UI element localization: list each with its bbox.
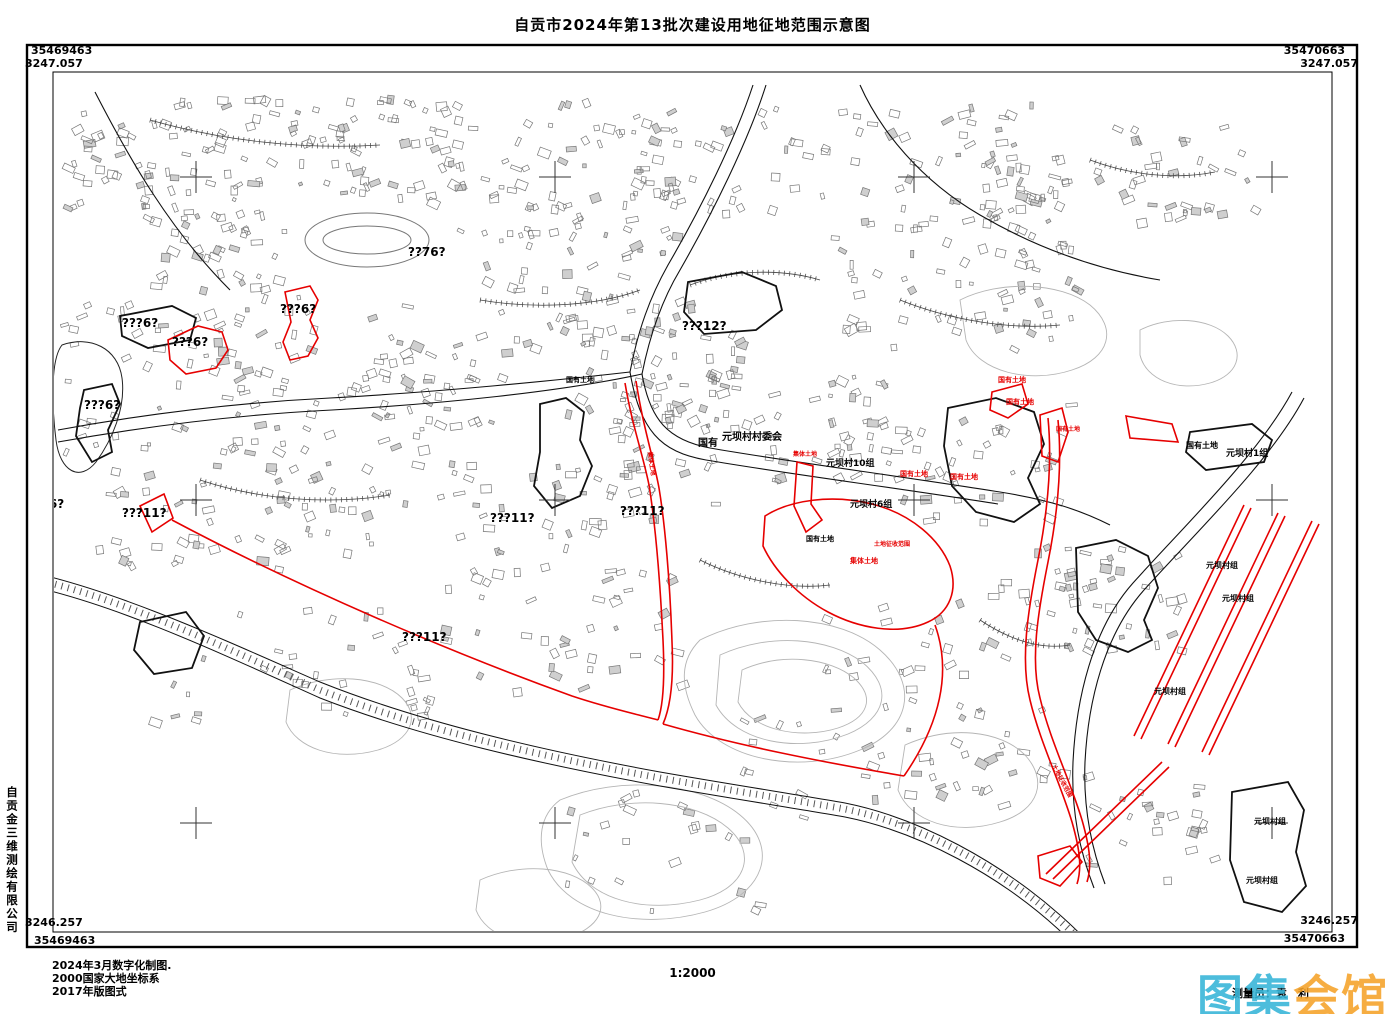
building-footprint — [676, 680, 689, 691]
building-footprint — [482, 276, 494, 288]
building-footprint — [483, 525, 495, 533]
building-footprint — [951, 738, 963, 749]
building-footprint — [107, 170, 118, 179]
building-footprint — [852, 375, 856, 379]
building-footprint — [214, 338, 223, 347]
building-footprint — [143, 488, 150, 496]
building-footprint — [388, 181, 399, 189]
building-footprint — [414, 181, 426, 191]
building-footprint — [541, 563, 551, 572]
building-footprint — [1069, 315, 1074, 321]
building-footprint — [273, 447, 286, 458]
building-footprint — [423, 108, 429, 114]
building-footprint — [204, 354, 209, 358]
building-footprint — [252, 439, 259, 445]
coord-bottom-left-x: 35469463 — [34, 934, 95, 947]
building-footprint — [569, 232, 576, 241]
building-footprint — [426, 416, 433, 424]
building-footprint — [236, 210, 245, 219]
building-footprint — [350, 115, 357, 122]
building-footprint — [978, 244, 988, 255]
building-footprint — [602, 576, 614, 584]
building-footprint — [217, 97, 228, 105]
building-footprint — [1086, 863, 1098, 867]
building-footprint — [973, 787, 979, 791]
building-footprint — [641, 176, 646, 183]
building-footprint — [995, 248, 1006, 258]
building-footprint — [829, 420, 834, 428]
building-footprint — [1251, 205, 1261, 215]
building-footprint — [773, 106, 779, 112]
building-footprint — [340, 191, 347, 195]
building-footprint — [235, 361, 241, 369]
building-footprint — [411, 140, 420, 149]
building-footprint — [115, 151, 126, 158]
building-footprint — [549, 228, 559, 236]
building-footprint — [582, 291, 591, 301]
building-footprint — [680, 384, 688, 387]
building-footprint — [1131, 126, 1139, 134]
building-footprint — [541, 637, 549, 646]
building-footprint — [125, 301, 134, 310]
building-footprint — [187, 359, 193, 368]
building-footprint — [1035, 467, 1040, 472]
building-footprint — [986, 637, 999, 648]
building-footprint — [144, 471, 155, 481]
building-footprint — [853, 114, 860, 120]
building-footprint — [445, 585, 451, 594]
grid-cross — [898, 484, 930, 516]
building-footprint — [809, 396, 820, 403]
building-footprint — [566, 146, 576, 152]
building-footprint — [689, 824, 698, 834]
watermark-part-1: 图集 — [1197, 970, 1293, 1014]
map-label: ???6? — [28, 497, 64, 511]
building-footprint — [426, 351, 437, 358]
coord-top-right-x: 35470663 — [1284, 44, 1345, 57]
building-footprint — [430, 145, 440, 153]
building-footprint — [1094, 168, 1102, 176]
building-footprint — [1112, 125, 1123, 133]
building-footprint — [324, 180, 330, 186]
building-footprint — [911, 250, 914, 257]
building-footprint — [403, 501, 408, 508]
road-lines — [58, 85, 1304, 888]
building-footprint — [651, 356, 662, 367]
building-footprint — [339, 507, 345, 513]
building-footprint — [420, 427, 424, 431]
building-footprint — [886, 461, 891, 466]
coord-bottom-left-y: 3246.257 — [25, 916, 83, 929]
building-footprint — [407, 687, 415, 697]
building-footprint — [607, 325, 617, 335]
map-label: 国有土地 — [806, 534, 834, 543]
building-footprint — [475, 630, 480, 636]
building-footprint — [378, 608, 383, 614]
building-footprint — [245, 308, 249, 312]
building-footprint — [998, 801, 1011, 810]
building-footprint — [143, 361, 153, 372]
building-footprint — [448, 161, 454, 167]
building-footprint — [791, 139, 803, 147]
building-footprint — [467, 462, 477, 470]
building-footprint — [309, 534, 313, 537]
building-footprint — [711, 502, 720, 506]
building-footprint — [983, 441, 991, 449]
building-footprint — [1028, 232, 1036, 240]
building-footprint — [73, 172, 85, 180]
building-footprint — [410, 340, 424, 353]
map-label: 元坝村组 — [1206, 560, 1238, 570]
building-footprint — [1047, 611, 1055, 617]
surveying-company-name: 自贡金三维测绘有限公司 — [4, 786, 20, 935]
building-footprint — [276, 100, 283, 107]
building-footprint — [295, 110, 301, 115]
building-footprint — [127, 561, 136, 570]
grid-cross — [180, 807, 212, 839]
building-footprint — [349, 507, 357, 515]
building-footprint — [956, 280, 961, 287]
building-footprint — [519, 276, 524, 284]
building-footprint — [586, 367, 594, 376]
building-footprint — [452, 354, 457, 360]
building-footprint — [1115, 567, 1124, 576]
building-footprint — [956, 599, 965, 609]
building-footprint — [633, 359, 641, 368]
building-footprint — [999, 743, 1005, 750]
building-footprint — [674, 141, 682, 148]
building-footprint — [831, 708, 842, 712]
building-footprint — [147, 163, 156, 169]
building-footprint — [301, 446, 309, 455]
building-footprint — [542, 519, 553, 530]
building-footprint — [957, 440, 962, 446]
building-footprint — [616, 569, 625, 576]
building-footprint — [1107, 555, 1114, 562]
building-footprint — [774, 412, 781, 420]
building-footprint — [267, 158, 278, 168]
building-footprint — [942, 237, 951, 247]
building-footprint — [507, 231, 512, 237]
building-footprint — [151, 283, 163, 290]
building-footprint — [140, 196, 149, 204]
building-footprint — [514, 337, 519, 344]
building-footprint — [758, 108, 767, 117]
building-footprint — [847, 314, 859, 324]
building-footprint — [867, 433, 874, 441]
building-footprint — [479, 513, 487, 519]
building-footprint — [476, 672, 484, 680]
building-footprint — [869, 444, 874, 452]
building-footprint — [845, 657, 852, 666]
building-footprint — [1151, 152, 1162, 163]
building-footprint — [761, 121, 767, 129]
building-footprint — [239, 390, 250, 396]
building-footprint — [565, 881, 569, 888]
building-footprint — [754, 715, 766, 723]
building-footprint — [1131, 136, 1141, 146]
building-footprint — [149, 717, 163, 728]
map-label: 土地征收范围 — [874, 540, 910, 548]
building-footprint — [254, 421, 267, 429]
building-footprint — [594, 125, 600, 131]
building-footprint — [848, 271, 855, 277]
building-footprint — [193, 541, 200, 549]
building-footprint — [654, 189, 661, 198]
building-footprint — [1164, 877, 1172, 885]
building-footprint — [166, 168, 170, 177]
building-footprint — [1154, 819, 1160, 825]
building-footprint — [507, 187, 517, 193]
building-footprint — [618, 435, 625, 443]
building-footprint — [600, 821, 610, 829]
building-footprint — [482, 230, 488, 236]
building-footprint — [959, 714, 966, 721]
building-footprint — [499, 186, 504, 190]
building-footprint — [169, 133, 177, 139]
building-footprint — [661, 128, 670, 132]
building-footprint — [267, 464, 277, 472]
building-footprint — [578, 684, 590, 692]
building-footprint — [282, 665, 293, 669]
building-footprint — [321, 703, 331, 710]
building-footprint — [1049, 174, 1061, 180]
building-footprint — [565, 410, 572, 420]
map-label: 元坝村组 — [1222, 593, 1254, 603]
grid-cross — [898, 161, 930, 193]
building-footprint — [859, 326, 871, 332]
building-footprint — [631, 653, 641, 658]
building-footprint — [1108, 811, 1116, 820]
building-footprint — [730, 366, 738, 372]
building-footprint — [736, 888, 746, 898]
map-label: ??76? — [408, 245, 446, 259]
building-footprint — [740, 718, 749, 725]
building-footprint — [159, 324, 169, 328]
building-footprint — [96, 545, 104, 554]
building-footprint — [881, 618, 893, 626]
building-footprint — [1084, 638, 1094, 648]
building-footprint — [861, 188, 870, 197]
building-footprint — [587, 654, 596, 664]
building-footprint — [688, 304, 696, 313]
building-footprint — [626, 216, 639, 223]
building-footprint — [346, 98, 354, 107]
building-footprint — [1167, 811, 1178, 821]
building-footprint — [275, 478, 283, 485]
building-footprint — [209, 544, 221, 554]
building-footprint — [556, 202, 567, 212]
map-scale: 1:2000 — [0, 966, 1385, 980]
building-footprint — [435, 129, 448, 138]
building-footprint — [605, 569, 617, 574]
building-footprint — [731, 425, 740, 432]
building-footprint — [609, 427, 621, 435]
building-footprint — [537, 147, 551, 159]
building-footprint — [161, 253, 170, 262]
grid-cross — [539, 484, 571, 516]
building-footprint — [880, 422, 889, 430]
building-footprint — [418, 445, 430, 456]
building-footprint — [181, 221, 190, 229]
building-footprint — [402, 304, 414, 309]
building-footprint — [468, 126, 478, 131]
building-footprint — [901, 205, 906, 212]
building-footprint — [1210, 855, 1221, 863]
building-footprint — [996, 139, 1008, 146]
building-footprint — [641, 119, 652, 129]
building-footprint — [1119, 189, 1129, 199]
building-footprint — [1040, 775, 1047, 783]
building-footprint — [163, 276, 168, 283]
map-label: ???11? — [402, 630, 447, 644]
building-footprint — [502, 349, 514, 357]
building-footprint — [65, 379, 71, 383]
map-label: 国有土地 — [998, 375, 1026, 384]
building-footprint — [867, 420, 878, 428]
building-footprint — [944, 660, 956, 670]
building-footprint — [1217, 210, 1228, 219]
building-footprint — [695, 141, 701, 147]
building-footprint — [407, 188, 415, 193]
building-footprint — [121, 354, 131, 362]
building-footprint — [150, 216, 162, 227]
building-footprint — [400, 348, 413, 360]
building-footprint — [1066, 403, 1078, 408]
building-footprint — [444, 383, 450, 389]
building-footprint — [328, 124, 338, 130]
building-footprint — [673, 353, 677, 360]
building-footprint — [624, 588, 633, 593]
building-footprint — [302, 503, 307, 510]
building-footprint — [740, 838, 750, 843]
map-sheet: ??76????6????6????6????6????6????11????1… — [0, 0, 1385, 1014]
building-footprint — [936, 156, 943, 166]
building-footprint — [1001, 654, 1011, 662]
building-footprint — [995, 166, 1001, 175]
building-footprint — [641, 151, 647, 156]
building-footprint — [291, 121, 298, 127]
building-footprint — [521, 268, 527, 275]
building-footprint — [828, 448, 840, 457]
building-footprint — [854, 290, 866, 299]
building-footprint — [675, 459, 686, 467]
building-footprint — [1010, 470, 1015, 475]
building-footprint — [328, 615, 336, 625]
map-label: ???11? — [620, 504, 665, 518]
building-footprint — [898, 316, 908, 325]
building-footprint — [1166, 597, 1178, 607]
building-footprint — [677, 198, 686, 205]
building-footprint — [522, 165, 530, 172]
building-footprint — [229, 245, 240, 253]
building-footprint — [665, 417, 671, 424]
building-footprint — [958, 110, 971, 120]
coord-top-left-x: 35469463 — [31, 44, 92, 57]
building-footprint — [628, 487, 642, 498]
building-footprint — [558, 101, 565, 110]
building-footprint — [1118, 546, 1126, 552]
building-footprint — [1035, 600, 1040, 607]
building-footprint — [201, 482, 207, 487]
building-footprint — [1089, 804, 1101, 812]
building-footprint — [565, 649, 577, 658]
building-footprint — [849, 673, 859, 681]
map-label: 元坝村村委会 — [722, 430, 782, 443]
building-footprint — [618, 273, 630, 280]
building-footprint — [1129, 180, 1137, 190]
building-footprint — [152, 543, 163, 550]
building-footprint — [556, 464, 560, 470]
building-footprint — [956, 153, 961, 157]
building-footprint — [1055, 569, 1061, 575]
building-footprint — [847, 445, 852, 451]
building-footprint — [498, 374, 508, 383]
building-footprint — [186, 692, 189, 697]
building-footprint — [170, 175, 179, 181]
building-footprint — [245, 450, 256, 456]
building-footprint — [1165, 202, 1177, 210]
map-label: 元坝村1组 — [1226, 447, 1268, 459]
building-footprint — [980, 519, 988, 526]
building-footprint — [1191, 208, 1201, 216]
building-footprint — [240, 230, 248, 239]
building-footprint — [614, 626, 619, 631]
building-footprint — [176, 381, 181, 389]
building-footprint — [667, 235, 672, 240]
building-footprint — [985, 200, 996, 209]
building-footprint — [585, 405, 593, 414]
building-footprint — [251, 240, 263, 246]
building-footprint — [77, 199, 84, 206]
building-footprint — [441, 106, 452, 117]
building-footprint — [729, 196, 736, 205]
building-footprint — [434, 420, 446, 430]
building-footprint — [923, 517, 935, 524]
building-footprint — [373, 632, 384, 639]
building-footprint — [1049, 336, 1054, 342]
building-footprint — [560, 326, 569, 335]
grid-cross — [539, 161, 571, 193]
building-footprint — [1173, 606, 1181, 616]
building-footprint — [1089, 583, 1098, 591]
building-footprint — [621, 793, 633, 803]
building-footprint — [449, 461, 455, 468]
building-footprint — [706, 354, 713, 363]
building-footprint — [604, 232, 608, 238]
building-footprint — [1010, 345, 1020, 353]
map-label: ???6? — [122, 316, 158, 330]
building-footprint — [120, 492, 128, 498]
building-footprint — [567, 807, 575, 816]
map-label: ???11? — [122, 506, 167, 520]
building-footprint — [390, 443, 401, 451]
building-footprint — [1133, 175, 1146, 185]
building-footprint — [1008, 223, 1020, 234]
building-footprint — [407, 406, 412, 414]
building-footprint — [992, 428, 999, 436]
building-footprint — [587, 624, 595, 632]
building-footprint — [84, 302, 92, 309]
building-footprint — [479, 595, 484, 600]
map-label: 元坝村组 — [1254, 816, 1286, 826]
building-footprint — [289, 654, 297, 660]
building-footprint — [630, 194, 635, 201]
building-footprint — [265, 507, 273, 515]
building-footprint — [912, 771, 922, 776]
building-footprint — [233, 271, 243, 280]
building-footprint — [560, 636, 570, 645]
